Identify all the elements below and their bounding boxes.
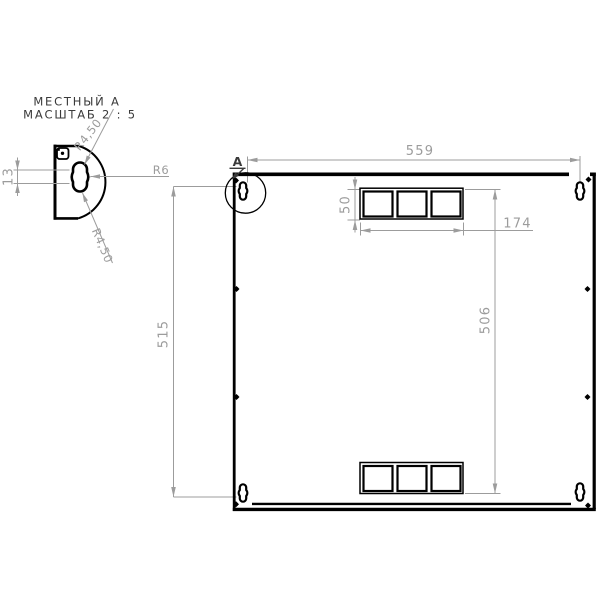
cutout-window bbox=[398, 466, 427, 491]
radius-bottom-value: R4,50 bbox=[89, 226, 116, 265]
dimension-515: 515 bbox=[157, 187, 237, 498]
radius-center-value: R6 bbox=[153, 163, 170, 177]
keyhole-bottom-right bbox=[576, 483, 585, 500]
technical-drawing: 13 R4,50 R4,50 R6 МЕСТНЫЙ А МАСШТАБ 2 : … bbox=[0, 0, 600, 600]
hole-dot bbox=[234, 179, 238, 183]
hole-dot bbox=[586, 395, 590, 399]
cutout-window bbox=[398, 192, 427, 217]
hole-dot bbox=[586, 504, 590, 508]
keyhole-bottom-left bbox=[239, 484, 248, 501]
arrowhead bbox=[454, 228, 464, 233]
dim-559-value: 559 bbox=[406, 144, 434, 159]
dim-13-value: 13 bbox=[2, 167, 17, 186]
detail-corner-hole bbox=[57, 148, 69, 159]
corner-hole-center-dot bbox=[61, 152, 64, 155]
ventilation-cutout-bottom bbox=[360, 463, 463, 494]
cutout-window bbox=[432, 192, 461, 217]
dimension-13: 13 bbox=[2, 158, 70, 197]
arrowhead bbox=[353, 220, 358, 230]
fastener-hole-right-upper bbox=[585, 286, 591, 292]
arrowhead bbox=[493, 190, 498, 200]
arrowhead bbox=[361, 228, 371, 233]
ventilation-cutout-top bbox=[360, 188, 463, 219]
hole-dot bbox=[587, 178, 591, 182]
detail-keyhole-slot bbox=[72, 163, 88, 192]
cutout-window bbox=[364, 192, 393, 217]
keyhole-top-left bbox=[239, 182, 248, 199]
dim-515-value: 515 bbox=[157, 320, 172, 348]
arrowhead bbox=[85, 156, 91, 165]
arrowhead bbox=[353, 180, 358, 190]
hole-dot bbox=[586, 287, 590, 291]
hole-dot bbox=[234, 502, 238, 506]
keyhole-top-right bbox=[576, 182, 585, 199]
arrowhead bbox=[248, 158, 258, 163]
arrowhead bbox=[171, 487, 176, 497]
detail-view-scale: МАСШТАБ 2 : 5 bbox=[23, 108, 137, 122]
arrowhead bbox=[493, 484, 498, 494]
corner-hole-mark bbox=[58, 149, 60, 151]
arrowhead bbox=[91, 174, 101, 178]
detail-view: 13 R4,50 R4,50 R6 МЕСТНЫЙ А МАСШТАБ 2 : … bbox=[2, 94, 170, 266]
dimension-50: 50 bbox=[339, 177, 361, 233]
arrowhead bbox=[171, 187, 176, 197]
callout-letter: A bbox=[233, 154, 243, 169]
fastener-hole-right-lower bbox=[585, 394, 591, 400]
arrowhead bbox=[83, 193, 89, 202]
cutout-window bbox=[432, 466, 461, 491]
detail-view-title: МЕСТНЫЙ А bbox=[33, 94, 120, 109]
arrowhead bbox=[570, 158, 580, 163]
dim-50-value: 50 bbox=[339, 195, 354, 214]
fastener-hole-top-right bbox=[586, 177, 592, 183]
hole-dot bbox=[235, 395, 239, 399]
drawing-sheet: 13 R4,50 R4,50 R6 МЕСТНЫЙ А МАСШТАБ 2 : … bbox=[0, 0, 600, 600]
dimension-506: 506 bbox=[465, 190, 501, 494]
cutout-window bbox=[364, 466, 393, 491]
dimension-559: 559 bbox=[248, 144, 581, 183]
fastener-hole-bottom-right bbox=[585, 503, 591, 509]
hole-dot bbox=[235, 287, 239, 291]
main-view: 559 515 506 50 bbox=[157, 144, 596, 511]
dim-506-value: 506 bbox=[479, 306, 494, 334]
dim-174-value: 174 bbox=[503, 217, 531, 232]
